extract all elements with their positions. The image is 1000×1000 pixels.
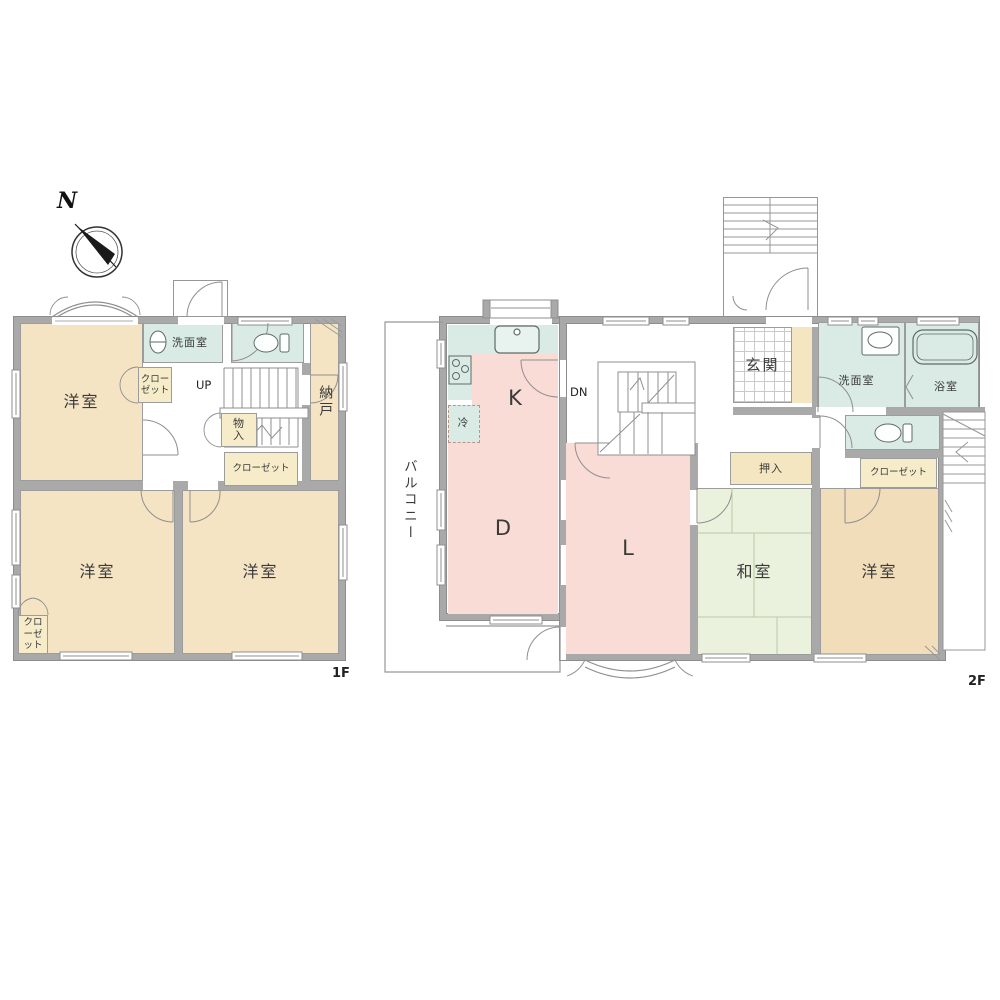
door-gap-porch (178, 317, 224, 325)
bow-window-icon (567, 660, 693, 678)
wall-1f-between-bedrooms (175, 490, 182, 654)
monoire-label: 物入 (232, 418, 246, 442)
room-living: L (566, 443, 690, 654)
compass-north-label: N (57, 188, 77, 214)
door-gap-balcony (560, 627, 566, 660)
closet-sw-label: クローゼット (19, 617, 47, 651)
closet-mid-label: クローゼット (232, 463, 289, 474)
floor-1-tag: 1F (332, 666, 350, 681)
door-gap-entry (766, 317, 812, 325)
room-label-living: L (622, 535, 634, 561)
room-label-washroom-2f: 洗面室 (839, 374, 875, 388)
room-label-bedroom-sw: 洋室 (79, 562, 115, 582)
door-gap-kitchen (560, 360, 566, 397)
door-gap (188, 481, 218, 490)
bay-window-gap (52, 317, 138, 325)
room-washroom-1f: 洗面室 (143, 323, 223, 363)
exterior-stair-top (723, 197, 818, 317)
fridge-box: 冷 (448, 405, 480, 443)
room-entrance: 玄関 (733, 327, 792, 403)
fridge-label: 冷 (458, 417, 471, 430)
door-gap (143, 481, 173, 490)
wall-2f-under-toilet (845, 450, 940, 458)
floor-1-entry-porch (173, 280, 228, 317)
exterior-stair-right (943, 412, 985, 650)
closet-nw-label: クローゼット (139, 374, 171, 397)
floorplan-canvas: N 洋室 洗面室 納戸 洋室 洋室 (0, 0, 1000, 1000)
room-kitchen: K (472, 353, 558, 443)
balcony-label: バルコニー (400, 459, 417, 542)
floor-2-tag: 2F (968, 674, 986, 689)
wall-2f-living-japanese (690, 443, 698, 655)
oshiire-label: 押入 (759, 462, 783, 476)
room-label-bedroom-2f: 洋室 (861, 562, 897, 582)
room-dining: D (448, 443, 558, 614)
room-label-nando: 納戸 (316, 385, 334, 419)
window-gap (561, 480, 566, 520)
room-label-washroom-1f: 洗面室 (172, 336, 208, 350)
room-storage-nando: 納戸 (310, 323, 339, 481)
stairs-up-label: UP (196, 378, 211, 392)
room-washroom-2f: 洗面室 (818, 322, 905, 412)
entrance-step (792, 327, 812, 403)
wall-2f-entry-washroom (812, 327, 818, 412)
closet-mid-box: クローゼット (224, 452, 298, 486)
wall-2f-japanese-bedroom (812, 412, 820, 655)
floor-1-plan: 洋室 洗面室 納戸 洋室 洋室 クローゼット 物入 (10, 275, 355, 687)
floor-2-plan: 冷 K D L 和室 洋室 玄関 ホール 洗面室 浴室 (380, 190, 995, 702)
closet-sw-box: クローゼット (18, 615, 48, 654)
kitchen-counter (448, 325, 558, 353)
room-toilet-1f (231, 323, 304, 363)
bay-window-icon (483, 300, 558, 318)
oshiire-box: 押入 (730, 452, 812, 485)
room-label-japanese: 和室 (736, 562, 772, 582)
kitchen-counter-side (448, 353, 472, 400)
room-label-kitchen: K (508, 385, 522, 411)
bay-window-gap-k (490, 317, 552, 325)
wall-2f-living-top (620, 440, 692, 448)
storage-monoire-box: 物入 (221, 413, 257, 447)
door-gap-washroom (816, 407, 886, 415)
room-bathroom: 浴室 (905, 322, 979, 412)
room-label-bedroom-nw: 洋室 (63, 392, 99, 412)
room-label-bedroom-se: 洋室 (242, 562, 278, 582)
stairs-down-label: DN (570, 385, 587, 399)
closet-nw-box: クローゼット (138, 367, 172, 403)
closet-2f-box: クローゼット (860, 458, 937, 488)
hall-label: ホール (742, 415, 1000, 429)
door-gap (302, 375, 310, 405)
room-bedroom-nw: 洋室 (20, 323, 143, 481)
room-label-bathroom: 浴室 (934, 380, 958, 394)
room-bedroom-se: 洋室 (182, 490, 339, 654)
closet-2f-label: クローゼット (870, 467, 927, 478)
room-label-entrance: 玄関 (745, 356, 779, 375)
room-label-dining: D (495, 515, 511, 541)
room-bedroom-2f: 洋室 (820, 488, 939, 655)
room-japanese: 和室 (697, 488, 812, 655)
door-gap-japanese (690, 490, 698, 525)
window-gap (561, 545, 566, 585)
